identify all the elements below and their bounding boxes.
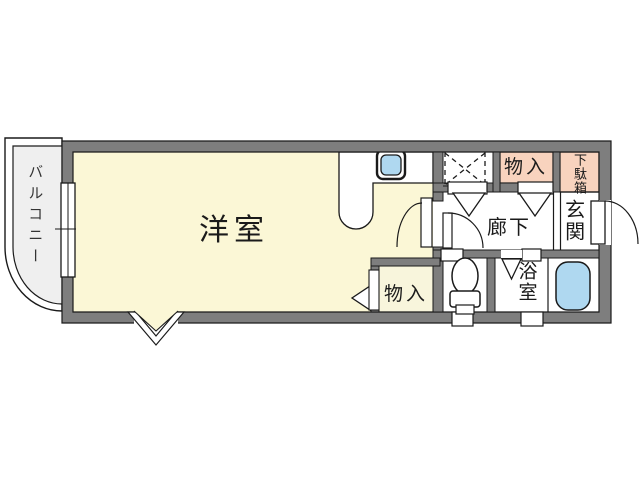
floor-plan: バルコニー 洋室 物入 下駄箱 玄関 廊下 浴室 物入 xyxy=(0,0,640,480)
toilet-icon xyxy=(450,258,480,314)
balcony-label: バルコニー xyxy=(27,164,43,269)
floor-plan-drawing xyxy=(0,0,640,480)
wall-toilet-bath xyxy=(487,258,495,312)
bath-threshold xyxy=(522,249,541,261)
bath-door-opening xyxy=(501,250,522,258)
main-room-label: 洋室 xyxy=(199,215,269,247)
bath-window xyxy=(521,312,543,326)
bathtub-icon xyxy=(556,262,590,310)
hall-door-leaf xyxy=(443,213,452,248)
bathroom-label: 浴室 xyxy=(516,261,537,303)
storage-lower-label: 物入 xyxy=(384,284,428,305)
wall-room-right-upper xyxy=(433,152,443,201)
wall-storage-lower-top xyxy=(371,258,440,266)
kitchen-sink-icon xyxy=(381,155,401,175)
hallway-label: 廊下 xyxy=(487,217,531,239)
storage-upper-label: 物入 xyxy=(504,157,548,178)
entrance-label: 玄関 xyxy=(562,199,584,243)
wall-laundry-storage xyxy=(493,152,500,192)
entrance-door-leaf xyxy=(591,201,605,244)
toilet-bowl xyxy=(452,258,478,294)
shoe-cabinet-label: 下駄箱 xyxy=(571,153,585,195)
room-door-leaf xyxy=(421,198,432,247)
laundry-threshold xyxy=(448,182,487,194)
storage-lower-door-leaf xyxy=(369,270,379,310)
wall-storage-shoe xyxy=(553,152,560,192)
bay-window xyxy=(128,311,184,345)
entrance-door xyxy=(591,200,638,245)
storage-upper-threshold xyxy=(518,182,553,194)
toilet-base xyxy=(456,305,474,314)
